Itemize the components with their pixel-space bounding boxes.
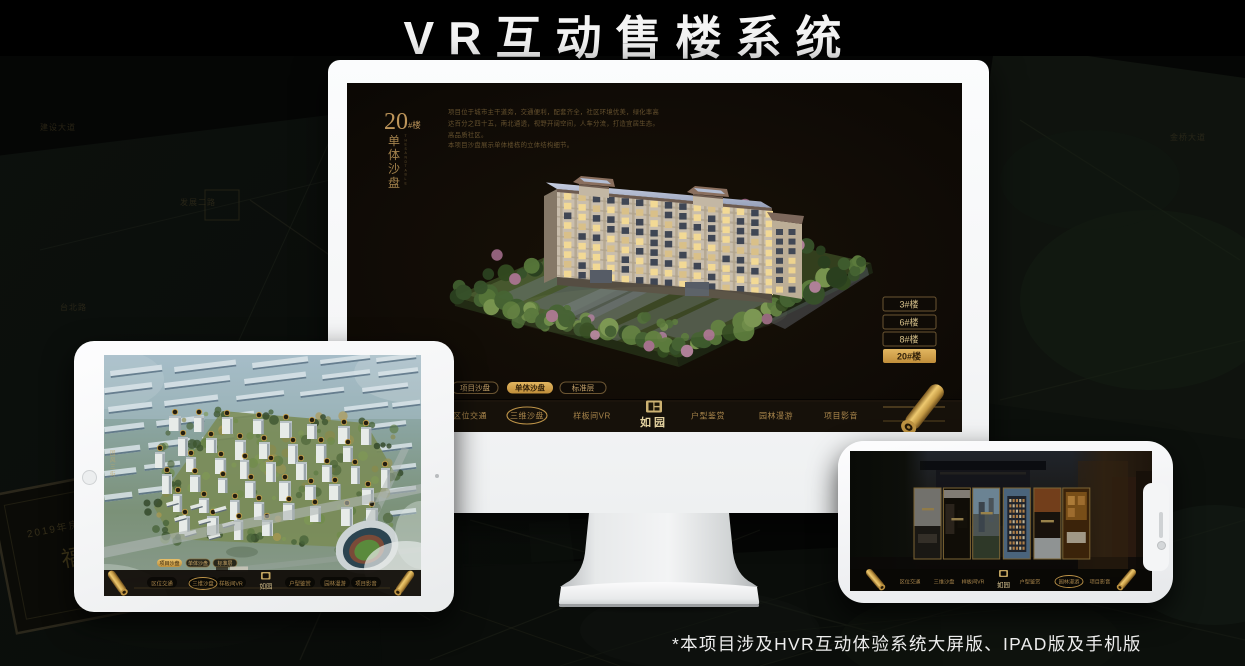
svg-text:项目影音: 项目影音: [355, 580, 377, 588]
svg-text:单体沙盘: 单体沙盘: [515, 383, 545, 393]
svg-text:项目位于城市主干道旁，交通便利，配套齐全，社区环境优美，绿化: 项目位于城市主干道旁，交通便利，配套齐全，社区环境优美，绿化率高: [448, 107, 659, 116]
svg-text:本项目沙盘展示单体楼栋的立体结构细节。: 本项目沙盘展示单体楼栋的立体结构细节。: [448, 140, 573, 149]
svg-text:园林漫游: 园林漫游: [324, 580, 346, 588]
svg-text:风: 风: [110, 457, 116, 464]
svg-text:区位交通: 区位交通: [900, 578, 922, 586]
svg-text:项目沙盘: 项目沙盘: [159, 560, 179, 567]
svg-text:台北路: 台北路: [60, 302, 87, 312]
svg-text:区位交通: 区位交通: [151, 580, 173, 588]
svg-text:街: 街: [110, 470, 116, 478]
svg-text:如园: 如园: [640, 415, 668, 429]
svg-text:达百分之四十五，南北通透，视野开阔空间，人车分流，打造宜居生: 达百分之四十五，南北通透，视野开阔空间，人车分流，打造宜居生态。: [448, 119, 659, 128]
svg-text:样板间VR: 样板间VR: [962, 578, 985, 586]
svg-text:区位交通: 区位交通: [453, 411, 487, 421]
svg-text:户型鉴赏: 户型鉴赏: [289, 580, 311, 588]
svg-text:样板间VR: 样板间VR: [573, 411, 611, 421]
svg-text:单: 单: [388, 134, 400, 148]
svg-text:3#楼: 3#楼: [899, 299, 918, 310]
svg-text:项目影音: 项目影音: [1090, 578, 1111, 586]
svg-text:户型鉴赏: 户型鉴赏: [691, 411, 725, 421]
svg-text:高品质社区。: 高品质社区。: [448, 130, 488, 139]
svg-text:园林漫游: 园林漫游: [759, 411, 793, 421]
svg-text:项目影音: 项目影音: [824, 411, 858, 421]
svg-text:盘: 盘: [388, 175, 400, 190]
svg-text:发展二路: 发展二路: [180, 197, 216, 207]
svg-text:如园: 如园: [997, 580, 1010, 589]
svg-text:标准层: 标准层: [572, 383, 595, 393]
svg-text:金桥大道: 金桥大道: [1170, 132, 1206, 142]
svg-text:沙: 沙: [388, 162, 400, 176]
svg-text:三维沙盘: 三维沙盘: [192, 580, 214, 588]
svg-text:园林漫游: 园林漫游: [1059, 578, 1080, 586]
svg-text:国: 国: [110, 450, 116, 457]
svg-text:样板间VR: 样板间VR: [219, 580, 243, 588]
svg-text:三维沙盘: 三维沙盘: [934, 578, 955, 586]
svg-text:如园: 如园: [260, 582, 273, 591]
svg-text:8#楼: 8#楼: [899, 334, 918, 345]
svg-text:单体沙盘: 单体沙盘: [188, 560, 208, 567]
svg-text:体: 体: [388, 148, 400, 162]
svg-text:项目沙盘: 项目沙盘: [460, 383, 490, 393]
svg-text:三维沙盘: 三维沙盘: [510, 411, 544, 421]
svg-text:建设大道: 建设大道: [40, 122, 76, 132]
svg-text:户型鉴赏: 户型鉴赏: [1020, 578, 1041, 586]
svg-text:20#楼: 20#楼: [897, 351, 921, 362]
svg-text:标准层: 标准层: [217, 560, 232, 567]
svg-text:三: 三: [110, 464, 116, 471]
svg-text:6#楼: 6#楼: [899, 317, 918, 328]
